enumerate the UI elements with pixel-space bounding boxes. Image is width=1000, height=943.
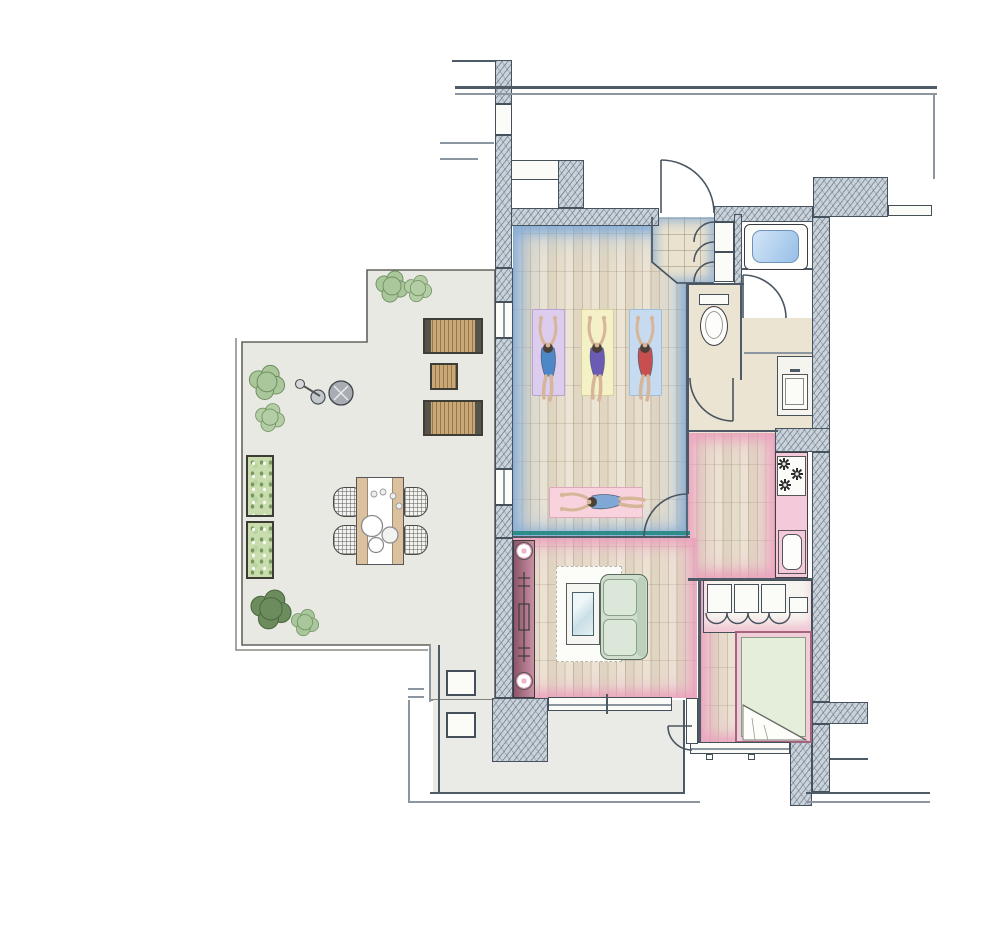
window-tick	[606, 694, 608, 714]
west-wall-segment	[495, 505, 513, 538]
south-east-wall-block	[790, 740, 812, 806]
balcony-planter	[446, 712, 476, 738]
shrub	[249, 365, 284, 399]
table-plank	[392, 478, 403, 564]
bathroom-door	[743, 275, 786, 318]
bedroom-window	[690, 742, 790, 754]
wall-opening-top-left	[495, 104, 512, 135]
vanity	[777, 356, 813, 416]
yoga-mat-lavender	[532, 309, 565, 396]
bathtub-water	[752, 230, 799, 263]
balcony-pillar	[492, 698, 548, 762]
exterior-wall-line	[452, 60, 496, 62]
west-wall-upper	[495, 135, 512, 268]
dining-chair	[404, 487, 428, 517]
yoga-mat-yellow	[581, 309, 614, 396]
dining-table	[356, 477, 404, 565]
shrub	[256, 404, 285, 432]
neighbor-line	[408, 696, 424, 698]
toilet-bowl	[700, 306, 728, 346]
wardrobe-section	[761, 584, 786, 613]
terrace-balcony-line	[429, 645, 431, 702]
window-mullion-tick	[706, 754, 713, 760]
table-plank	[357, 478, 368, 564]
wall-column-top	[495, 60, 512, 104]
vanity-sink-inner	[785, 378, 804, 405]
yoga-north-wall	[511, 208, 659, 226]
wall-step-line	[830, 758, 868, 760]
dining-chair	[333, 487, 357, 517]
south-wall-line	[806, 801, 930, 803]
neighbor-wall-band	[888, 205, 932, 216]
lounger-end	[425, 402, 431, 434]
coffee-table-glass	[572, 592, 594, 636]
lounger-end	[475, 402, 481, 434]
neighbor-line	[440, 158, 478, 160]
shrub	[291, 609, 318, 635]
toilet-seat	[705, 311, 723, 339]
washroom-counter-line	[744, 352, 812, 354]
west-wall-living	[495, 538, 513, 698]
wardrobe-section	[734, 584, 759, 613]
toilet-tank	[699, 294, 729, 305]
east-wall-mid	[812, 452, 830, 702]
closet-tub-divider-wall	[734, 214, 742, 284]
window-glazing-line	[549, 704, 671, 706]
east-wall-protrusion	[813, 177, 888, 217]
shrubs	[249, 271, 431, 636]
sofa-backrest	[637, 577, 646, 657]
grill	[296, 380, 354, 406]
wardrobe	[703, 580, 812, 633]
wardrobe-small-section	[789, 597, 808, 613]
neighbor-line	[408, 688, 424, 690]
wall-block-entry-left	[558, 160, 584, 208]
balcony-east-line	[683, 700, 685, 792]
shoe-closet-upper	[714, 222, 734, 252]
exterior-niche	[511, 160, 559, 180]
west-wall-segment	[495, 338, 513, 469]
toilet-washroom-divider	[740, 283, 742, 380]
double-bed	[735, 631, 812, 743]
partition-track-line	[513, 536, 690, 538]
corridor-wall-line	[455, 93, 937, 95]
balcony-edge-line	[430, 792, 685, 794]
sofa	[600, 574, 648, 660]
neighbor-line	[440, 142, 494, 144]
sun-lounger	[423, 400, 483, 436]
corridor-wall-line	[455, 86, 937, 89]
glass-partition	[513, 531, 690, 535]
sun-lounger	[423, 318, 483, 354]
balcony-west-line	[438, 645, 440, 792]
west-wall-segment	[495, 268, 513, 302]
balcony-planter	[446, 670, 476, 696]
north-wall-right	[714, 206, 813, 222]
entry-door	[661, 160, 714, 213]
living-bedroom-divider	[698, 580, 701, 743]
south-wall-line	[806, 792, 930, 794]
speaker-ring	[515, 542, 533, 560]
yoga-mat-pink	[549, 487, 643, 518]
planter-box	[246, 521, 274, 579]
east-wall-lower	[812, 724, 830, 792]
floor-plan	[0, 0, 1000, 943]
kitchen-floor	[688, 433, 775, 578]
faucet	[790, 369, 800, 372]
window-glazing-line	[691, 748, 789, 750]
kitchen-north-line	[688, 430, 778, 432]
balcony-edge-outer-line	[410, 801, 700, 803]
dining-chair	[404, 525, 428, 555]
east-wall-upper	[812, 217, 830, 430]
east-wall-step	[812, 702, 868, 724]
side-table	[430, 363, 458, 390]
lounger-end	[425, 320, 431, 352]
shrub	[404, 275, 431, 301]
toilet-room-top-wall	[686, 283, 744, 285]
yoga-mat-blue	[629, 309, 662, 396]
planter-box	[246, 455, 274, 517]
wardrobe-section	[707, 584, 732, 613]
lounger-end	[475, 320, 481, 352]
bathtub	[744, 224, 808, 270]
stove	[777, 456, 806, 496]
kitchen-north-wall-block	[775, 428, 830, 452]
shoe-closet-lower	[714, 252, 734, 282]
window-glazing-line	[503, 303, 505, 337]
window-mullion-tick	[748, 754, 755, 760]
sofa-cushion	[603, 619, 637, 656]
shrub	[251, 590, 291, 629]
window-glazing-line	[503, 470, 505, 504]
coffee-table	[566, 583, 600, 645]
speaker-ring	[515, 672, 533, 690]
sofa-cushion	[603, 579, 637, 616]
yoga-east-wall	[686, 283, 689, 494]
living-room-window	[548, 697, 672, 711]
balcony-door-frame	[686, 698, 698, 744]
neighbor-line	[933, 95, 935, 179]
neighbor-line	[408, 700, 410, 803]
dining-chair	[333, 525, 357, 555]
kitchen-sink-basin	[782, 534, 802, 570]
kitchen-sink	[778, 530, 806, 574]
bed-duvet	[741, 637, 806, 737]
shrub	[376, 271, 408, 302]
